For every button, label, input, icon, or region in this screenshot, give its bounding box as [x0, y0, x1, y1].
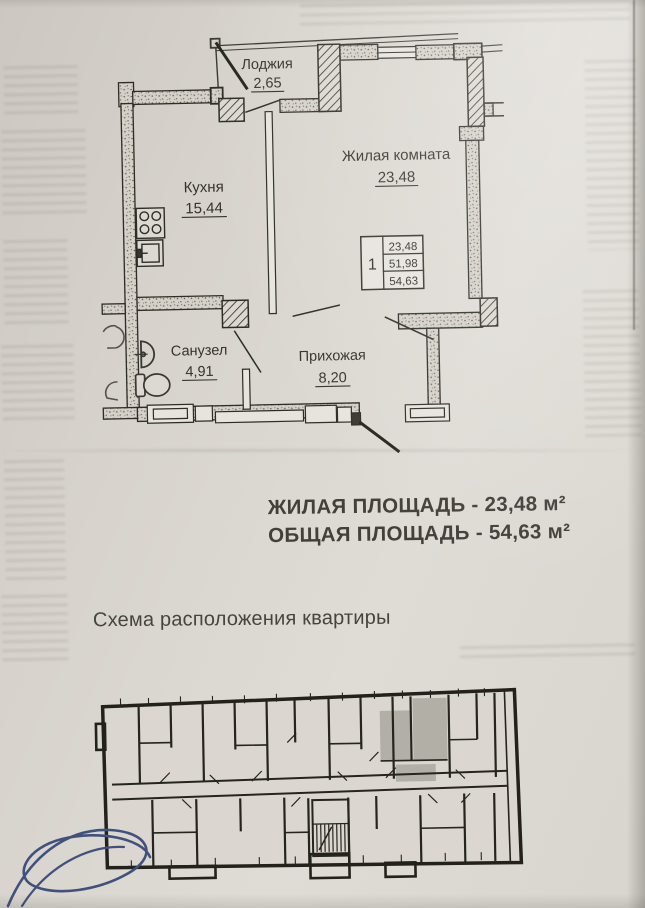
kitchen-sink-icon: [137, 240, 164, 267]
partitions: [237, 112, 278, 410]
room-area-living: 23,48: [378, 169, 416, 187]
paper-edge-line: [633, 0, 635, 330]
living-area-line: ЖИЛАЯ ПЛОЩАДЬ - 23,48 м²: [268, 490, 578, 522]
total-area-line: ОБЩАЯ ПЛОЩАДЬ - 54,63 м²: [268, 518, 578, 550]
apartment-floor-plan: 1 23,48 51,98 54,63 Лоджия 2,65 Кухня 15…: [96, 33, 511, 457]
paper-crease: [0, 449, 645, 452]
room-label-kitchen: Кухня: [183, 179, 224, 197]
room-area-loggia: 2,65: [253, 75, 282, 92]
room-area-hallway: 8,20: [318, 370, 347, 387]
stamp-apartment-number: 1: [368, 256, 377, 273]
area-stamp-table: 1 23,48 51,98 54,63: [361, 235, 424, 289]
toilet-icon: [136, 374, 170, 397]
scanned-floor-plan-page: { "floor_plan": { "rooms": [ {"name": "Л…: [0, 0, 645, 908]
room-label-bathroom: Санузел: [171, 343, 228, 360]
building-outline: [102, 690, 521, 870]
room-area-kitchen: 15,44: [185, 200, 223, 218]
stove-icon: [136, 208, 165, 239]
stamp-living-area: 23,48: [388, 241, 417, 254]
room-area-bathroom: 4,91: [185, 364, 214, 381]
room-label-hallway: Прихожая: [298, 348, 366, 365]
paper-edge-bottom: [0, 894, 645, 908]
drawing-layer: 1 23,48 51,98 54,63 Лоджия 2,65 Кухня 15…: [0, 0, 645, 908]
adjacent-fixtures: [104, 326, 126, 401]
door-swings: [230, 97, 434, 372]
stamp-area-row2: 51,98: [389, 258, 418, 271]
paper-edge-top: [0, 0, 645, 8]
room-label-loggia: Лоджия: [241, 56, 293, 73]
stamp-total-area: 54,63: [389, 276, 418, 289]
entry-leader-line: [361, 422, 399, 452]
area-summary: ЖИЛАЯ ПЛОЩАДЬ - 23,48 м² ОБЩАЯ ПЛОЩАДЬ -…: [268, 490, 579, 550]
scheme-title: Схема расположения квартиры: [93, 607, 391, 633]
paper-edge-right: [627, 0, 645, 908]
building-scheme-plan: [95, 688, 521, 882]
room-label-living: Жилая комната: [342, 146, 451, 165]
